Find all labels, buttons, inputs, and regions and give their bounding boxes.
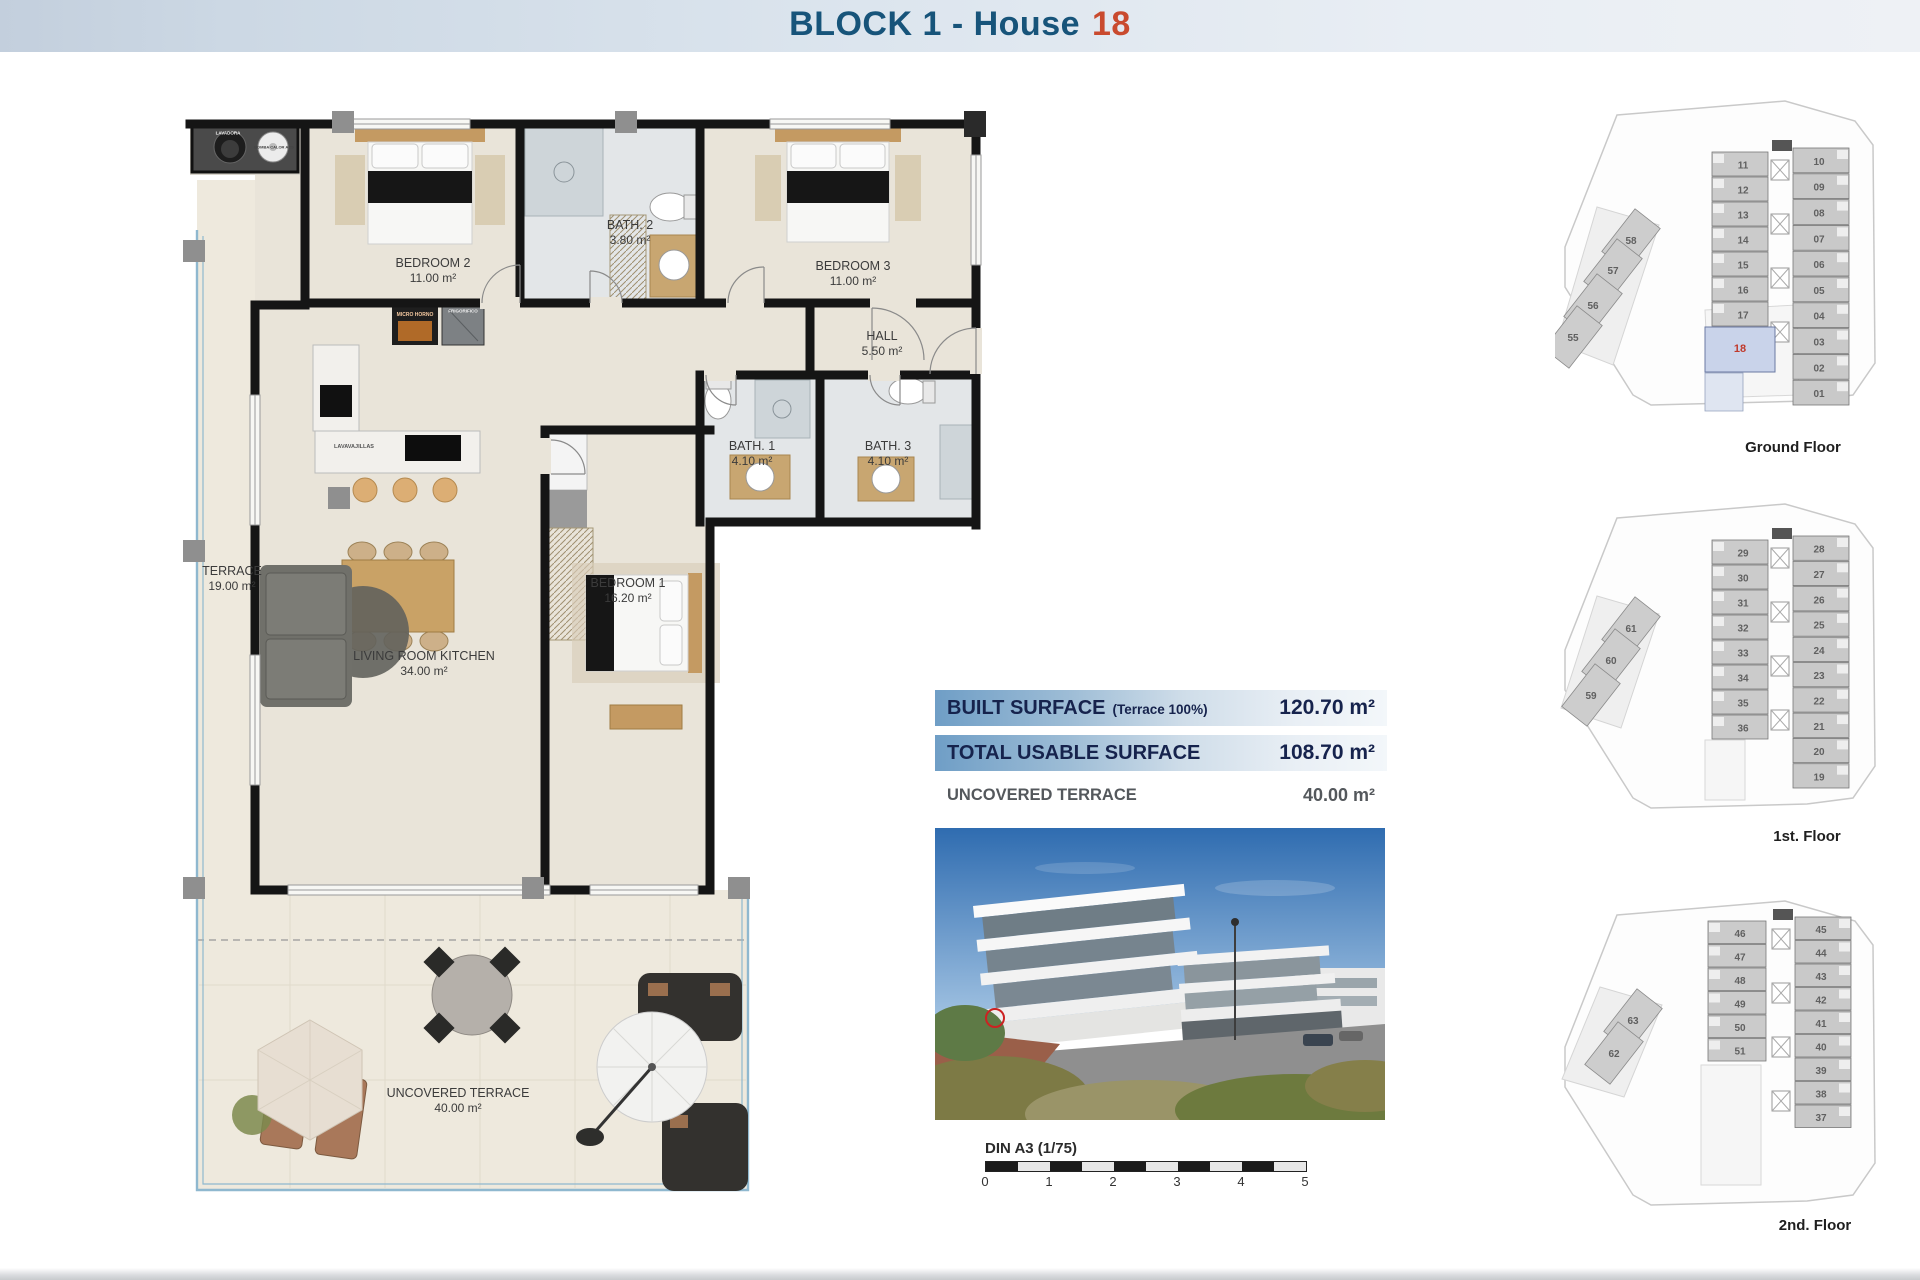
room-area: 16.20 m² (590, 591, 665, 607)
svg-text:63: 63 (1627, 1016, 1639, 1027)
room-name: HALL (862, 328, 903, 344)
room-name: BEDROOM 1 (590, 575, 665, 591)
surface-row-2: UNCOVERED TERRACE40.00 m² (935, 780, 1387, 810)
svg-text:14: 14 (1737, 236, 1749, 247)
surface-value: 108.70 m² (1279, 741, 1375, 765)
svg-text:55: 55 (1567, 333, 1579, 344)
svg-text:39: 39 (1815, 1066, 1827, 1077)
svg-text:26: 26 (1813, 595, 1825, 606)
svg-text:33: 33 (1737, 649, 1749, 660)
key-plan-2: 6362464748495051454443424140393837 (1520, 895, 1920, 1247)
svg-text:37: 37 (1815, 1113, 1827, 1124)
header-bar: BLOCK 1 - House18 (0, 0, 1920, 52)
room-label-bedroom1: BEDROOM 116.20 m² (590, 575, 665, 607)
room-area: 11.00 m² (815, 274, 890, 290)
scale-segment (1082, 1162, 1114, 1171)
room-area: 40.00 m² (387, 1101, 530, 1117)
room-name: BATH. 1 (729, 438, 775, 454)
svg-text:45: 45 (1815, 925, 1827, 936)
svg-text:51: 51 (1734, 1046, 1746, 1057)
scale-label: DIN A3 (1/75) (985, 1140, 1325, 1157)
room-area: 11.00 m² (395, 271, 470, 287)
svg-text:48: 48 (1734, 976, 1746, 987)
svg-text:17: 17 (1737, 311, 1749, 322)
appliance-label-lavavajillas: LAVAVAJILLAS (334, 444, 374, 450)
scale-tick: 0 (981, 1174, 988, 1189)
svg-text:11: 11 (1738, 161, 1749, 172)
key-plan-1: 6160592930313233343536282726252423222120… (1555, 498, 1920, 870)
svg-text:57: 57 (1607, 266, 1619, 277)
svg-text:08: 08 (1813, 209, 1825, 220)
svg-text:24: 24 (1813, 646, 1825, 657)
svg-text:30: 30 (1737, 574, 1749, 585)
appliance-label-frigo: FRIGORIFICO (448, 309, 478, 314)
svg-text:03: 03 (1813, 338, 1825, 349)
room-label-hall: HALL5.50 m² (862, 328, 903, 360)
svg-text:25: 25 (1813, 621, 1825, 632)
title-text: BLOCK 1 - House (789, 5, 1080, 43)
key-plan-0: 5857565511121314151617181009080706050403… (1555, 95, 1920, 467)
svg-text:22: 22 (1813, 696, 1825, 707)
svg-text:59: 59 (1585, 691, 1597, 702)
room-area: 19.00 m² (202, 579, 262, 595)
svg-text:19: 19 (1813, 772, 1825, 783)
svg-text:36: 36 (1737, 724, 1749, 735)
room-name: BATH. 2 (607, 217, 653, 233)
svg-text:16: 16 (1737, 286, 1749, 297)
svg-text:31: 31 (1737, 599, 1749, 610)
scale-segment (1114, 1162, 1146, 1171)
room-label-bath2: BATH. 23.80 m² (607, 217, 653, 249)
svg-text:29: 29 (1737, 549, 1749, 560)
surface-value: 40.00 m² (1303, 785, 1375, 806)
room-name: BATH. 3 (865, 438, 911, 454)
page-title: BLOCK 1 - House18 (0, 5, 1920, 44)
svg-text:10: 10 (1813, 157, 1825, 168)
surface-value: 120.70 m² (1279, 696, 1375, 720)
scale-segment (986, 1162, 1018, 1171)
surface-row-1: TOTAL USABLE SURFACE108.70 m² (935, 735, 1387, 771)
key-plan-label-1: 1st. Floor (1727, 828, 1887, 845)
room-area: 4.10 m² (865, 454, 911, 470)
svg-text:06: 06 (1813, 260, 1825, 271)
scale-segment (1018, 1162, 1050, 1171)
scale-bar: DIN A3 (1/75) 012345 (985, 1140, 1325, 1192)
appliance-label-micro: MICRO HORNO (397, 312, 434, 318)
room-label-bedroom2: BEDROOM 211.00 m² (395, 255, 470, 287)
svg-text:58: 58 (1625, 236, 1637, 247)
scale-tick: 1 (1045, 1174, 1052, 1189)
brochure-page: BLOCK 1 - House18 (0, 0, 1920, 1280)
room-label-bedroom3: BEDROOM 311.00 m² (815, 258, 890, 290)
svg-text:47: 47 (1734, 952, 1746, 963)
scale-segments (985, 1161, 1307, 1172)
scale-segment (1050, 1162, 1082, 1171)
svg-text:01: 01 (1813, 389, 1825, 400)
room-label-bath1: BATH. 14.10 m² (729, 438, 775, 470)
scale-segment (1146, 1162, 1178, 1171)
room-name: TERRACE (202, 563, 262, 579)
svg-text:28: 28 (1813, 545, 1825, 556)
svg-text:18: 18 (1734, 343, 1746, 355)
key-plan-label-0: Ground Floor (1713, 439, 1873, 456)
room-label-uncovered: UNCOVERED TERRACE40.00 m² (387, 1085, 530, 1117)
svg-text:21: 21 (1813, 722, 1825, 733)
room-name: BEDROOM 2 (395, 255, 470, 271)
svg-text:12: 12 (1737, 186, 1749, 197)
svg-text:09: 09 (1813, 183, 1825, 194)
scale-ticks: 012345 (985, 1174, 1307, 1192)
key-plan-label-2: 2nd. Floor (1735, 1217, 1895, 1234)
svg-text:07: 07 (1813, 234, 1825, 245)
svg-text:56: 56 (1587, 301, 1599, 312)
surface-row-0: BUILT SURFACE(Terrace 100%)120.70 m² (935, 690, 1387, 726)
svg-text:62: 62 (1608, 1049, 1620, 1060)
scale-segment (1178, 1162, 1210, 1171)
room-label-terrace: TERRACE19.00 m² (202, 563, 262, 595)
svg-text:44: 44 (1815, 948, 1827, 959)
scale-tick: 3 (1173, 1174, 1180, 1189)
scale-tick: 4 (1237, 1174, 1244, 1189)
room-label-living: LIVING ROOM KITCHEN34.00 m² (353, 648, 495, 680)
svg-text:38: 38 (1815, 1089, 1827, 1100)
svg-text:02: 02 (1813, 363, 1825, 374)
surface-label: TOTAL USABLE SURFACE (947, 742, 1200, 765)
svg-text:42: 42 (1815, 995, 1827, 1006)
footer-strip (0, 1268, 1920, 1280)
svg-text:20: 20 (1813, 747, 1825, 758)
appliance-label-bomba: BOMBA CALOR ACS (254, 145, 294, 150)
svg-text:15: 15 (1737, 261, 1749, 272)
room-area: 3.80 m² (607, 233, 653, 249)
room-area: 34.00 m² (353, 664, 495, 680)
surface-note: (Terrace 100%) (1113, 702, 1208, 717)
building-photo (935, 828, 1385, 1120)
svg-text:43: 43 (1815, 972, 1827, 983)
svg-text:49: 49 (1734, 999, 1746, 1010)
surface-label: BUILT SURFACE (947, 697, 1106, 720)
room-label-bath3: BATH. 34.10 m² (865, 438, 911, 470)
svg-text:27: 27 (1813, 570, 1825, 581)
scale-segment (1242, 1162, 1274, 1171)
scale-segment (1274, 1162, 1306, 1171)
svg-text:60: 60 (1605, 656, 1617, 667)
surface-label: UNCOVERED TERRACE (947, 786, 1137, 805)
svg-text:32: 32 (1737, 624, 1749, 635)
room-name: LIVING ROOM KITCHEN (353, 648, 495, 664)
appliance-label-lavadora: LAVADORA (216, 131, 241, 136)
room-area: 5.50 m² (862, 344, 903, 360)
scale-segment (1210, 1162, 1242, 1171)
svg-text:04: 04 (1813, 312, 1825, 323)
svg-text:40: 40 (1815, 1042, 1827, 1053)
surface-table: BUILT SURFACE(Terrace 100%)120.70 m²TOTA… (935, 690, 1387, 810)
svg-text:23: 23 (1813, 671, 1825, 682)
room-name: UNCOVERED TERRACE (387, 1085, 530, 1101)
svg-text:41: 41 (1815, 1019, 1827, 1030)
svg-text:13: 13 (1737, 211, 1749, 222)
svg-text:34: 34 (1737, 674, 1749, 685)
svg-text:05: 05 (1813, 286, 1825, 297)
house-number: 18 (1092, 5, 1131, 43)
scale-tick: 2 (1109, 1174, 1116, 1189)
room-area: 4.10 m² (729, 454, 775, 470)
scale-tick: 5 (1301, 1174, 1308, 1189)
room-name: BEDROOM 3 (815, 258, 890, 274)
svg-text:50: 50 (1734, 1023, 1746, 1034)
main-floor-plan: TERRACE19.00 m²BEDROOM 211.00 m²BATH. 23… (170, 95, 1000, 1215)
svg-text:46: 46 (1734, 929, 1746, 940)
svg-text:61: 61 (1625, 624, 1637, 635)
svg-text:35: 35 (1737, 699, 1749, 710)
